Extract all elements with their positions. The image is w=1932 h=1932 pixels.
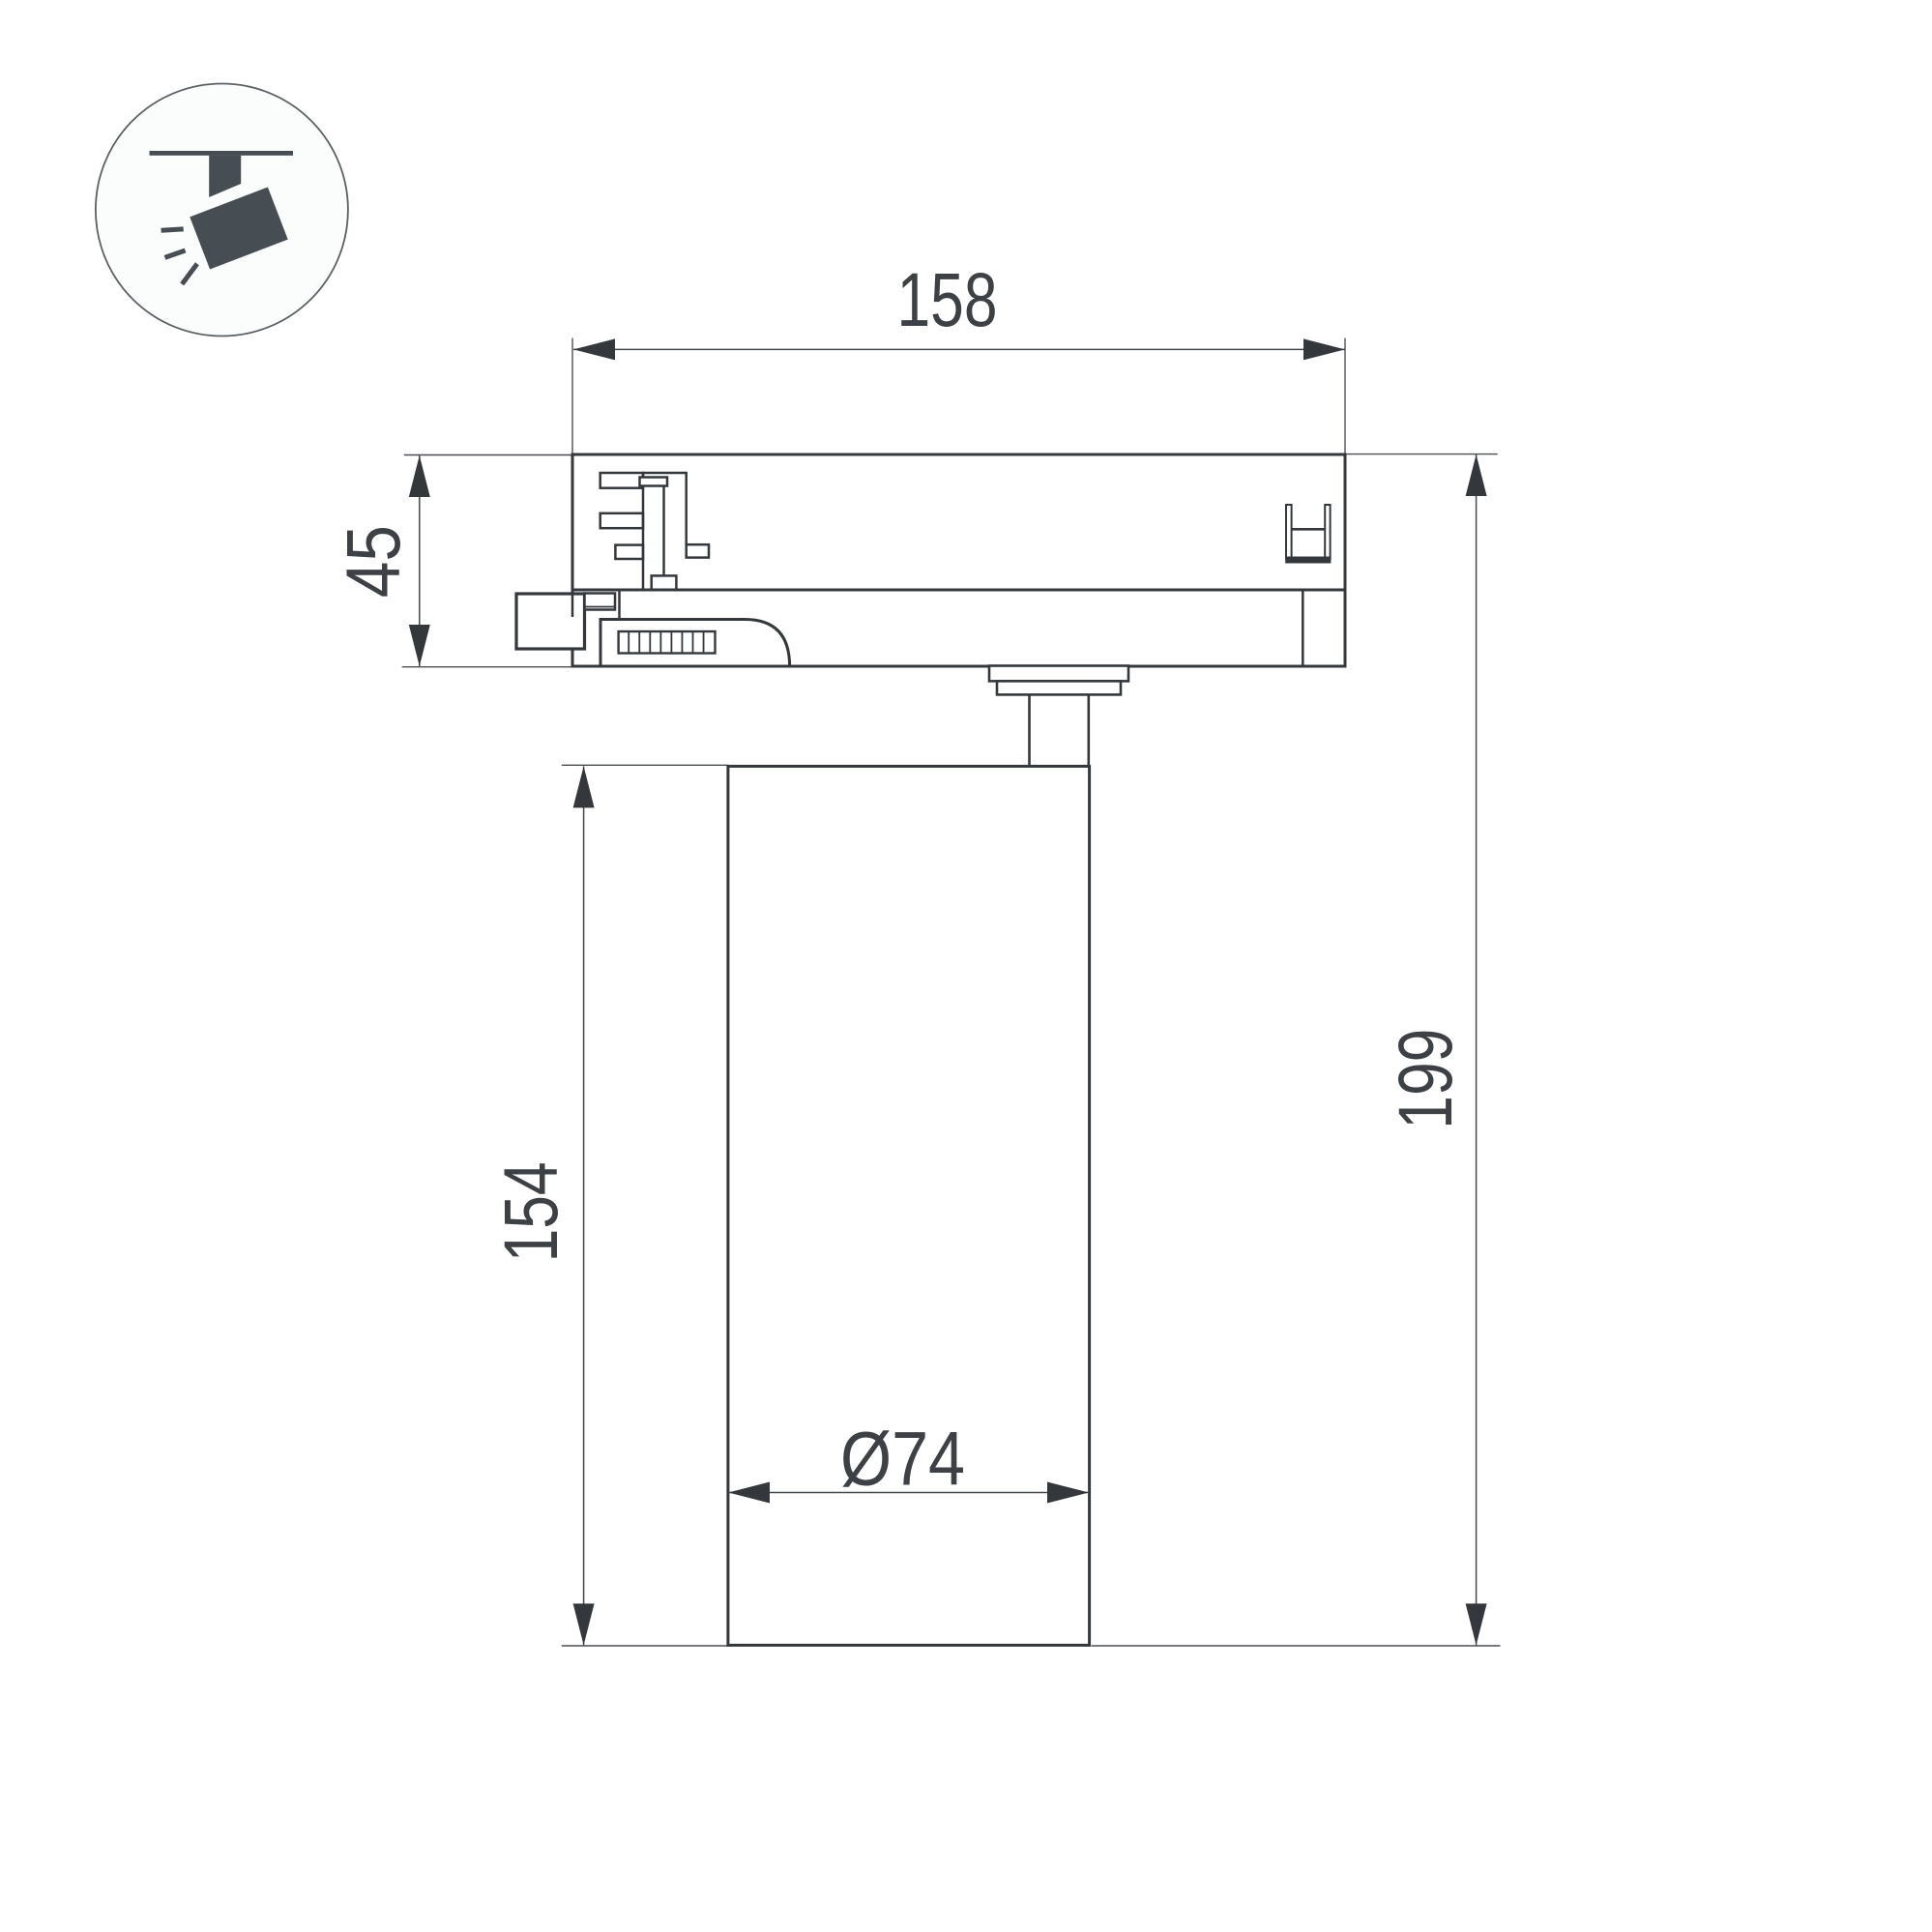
svg-text:45: 45 bbox=[330, 525, 416, 598]
svg-text:158: 158 bbox=[897, 256, 998, 342]
svg-text:199: 199 bbox=[1382, 1029, 1468, 1129]
svg-text:154: 154 bbox=[487, 1161, 573, 1262]
svg-text:Ø74: Ø74 bbox=[840, 1415, 965, 1501]
